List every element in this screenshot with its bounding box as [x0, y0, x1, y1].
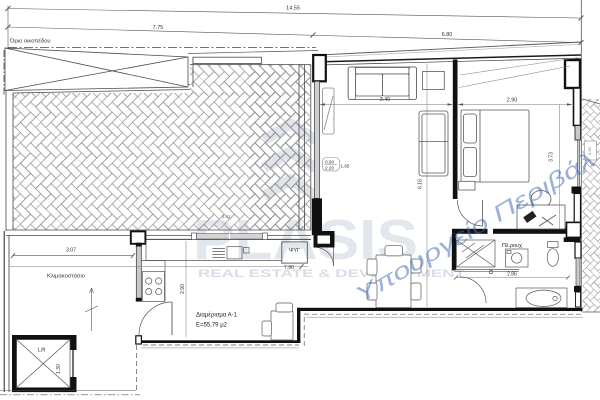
svg-text:Διαμέρισμα Α-1: Διαμέρισμα Α-1	[196, 312, 238, 319]
svg-text:3.40: 3.40	[380, 97, 391, 103]
svg-text:2.90: 2.90	[180, 284, 186, 294]
svg-text:1.65: 1.65	[341, 163, 350, 168]
svg-text:2.41: 2.41	[222, 214, 231, 219]
svg-text:6.16: 6.16	[418, 179, 424, 189]
svg-text:ΨΥΓ: ΨΥΓ	[289, 248, 300, 254]
svg-text:2.20: 2.20	[325, 166, 334, 171]
svg-text:0.90: 0.90	[325, 159, 334, 164]
svg-text:7.90: 7.90	[284, 265, 294, 271]
svg-text:14.55: 14.55	[286, 6, 300, 12]
svg-text:Όριο οικοπέδου: Όριο οικοπέδου	[9, 38, 51, 45]
svg-text:1.30: 1.30	[56, 364, 62, 374]
svg-text:7.75: 7.75	[153, 25, 164, 31]
svg-text:Κλιμακοστάσιο: Κλιμακοστάσιο	[47, 273, 85, 280]
svg-text:2.90: 2.90	[507, 98, 518, 104]
svg-text:Πλ.ρουχ: Πλ.ρουχ	[502, 243, 522, 249]
svg-text:3.07: 3.07	[66, 248, 76, 254]
svg-text:Lift: Lift	[38, 348, 46, 354]
svg-text:2.86: 2.86	[507, 272, 517, 278]
svg-text:Ε=55,79 μ2: Ε=55,79 μ2	[196, 323, 228, 329]
svg-text:3.73: 3.73	[549, 152, 555, 162]
svg-text:6.80: 6.80	[442, 32, 453, 38]
